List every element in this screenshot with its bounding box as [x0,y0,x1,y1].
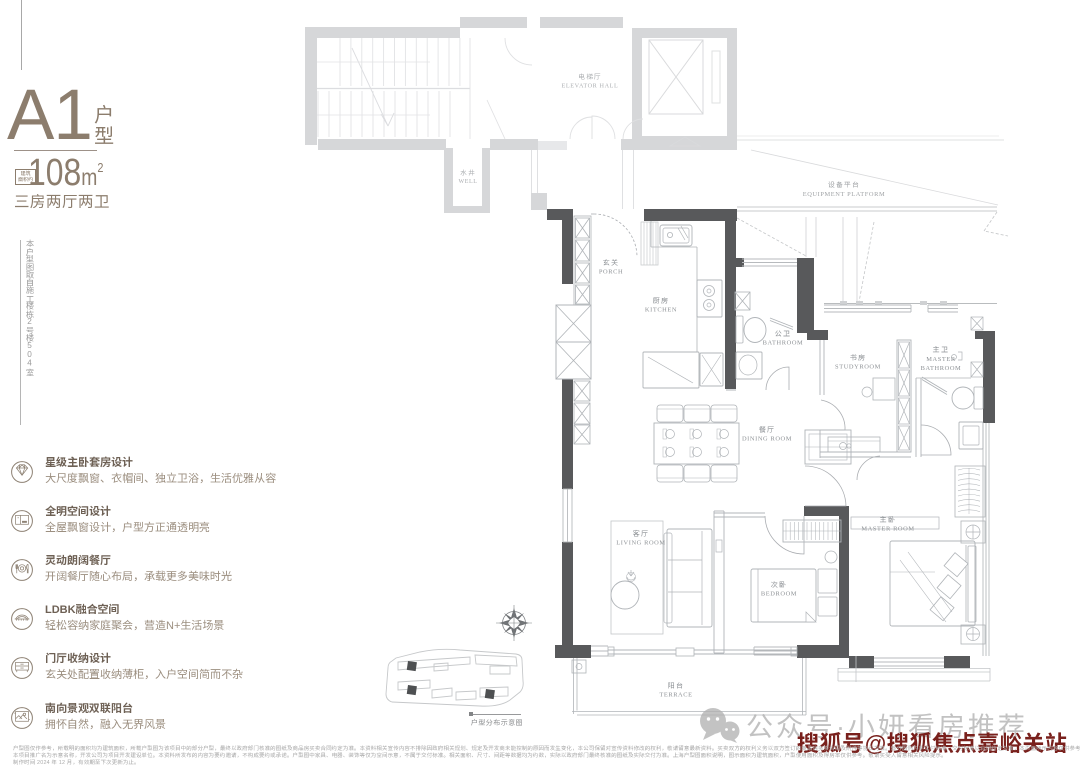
svg-text:餐厅: 餐厅 [759,425,775,435]
svg-text:玄关: 玄关 [603,258,619,268]
svg-text:TERRACE: TERRACE [659,692,692,699]
svg-text:电梯厅: 电梯厅 [578,71,601,81]
svg-text:STUDYROOM: STUDYROOM [835,364,881,371]
svg-text:设备平台: 设备平台 [828,179,860,189]
svg-text:KITCHEN: KITCHEN [645,307,677,314]
svg-text:MASTER: MASTER [926,356,956,363]
svg-text:BATHROOM: BATHROOM [921,365,962,372]
svg-text:阳台: 阳台 [668,681,684,691]
svg-text:ELEVATOR HALL: ELEVATOR HALL [562,83,619,90]
svg-text:公卫: 公卫 [775,329,791,339]
svg-text:次卧: 次卧 [771,580,787,590]
svg-text:EQUIPMENT PLATFORM: EQUIPMENT PLATFORM [803,191,886,198]
svg-text:LIVING ROOM: LIVING ROOM [616,540,665,547]
svg-text:厨房: 厨房 [653,296,669,306]
svg-text:主卧: 主卧 [880,515,896,525]
svg-text:BEDROOM: BEDROOM [761,591,797,598]
svg-text:书房: 书房 [850,353,866,363]
svg-text:主卫: 主卫 [933,345,949,355]
svg-text:水井: 水井 [460,167,475,177]
svg-text:BATHROOM: BATHROOM [763,340,804,347]
svg-text:MASTER ROOM: MASTER ROOM [861,526,914,533]
svg-text:PORCH: PORCH [599,269,623,276]
svg-text:客厅: 客厅 [633,529,649,539]
svg-text:DINING ROOM: DINING ROOM [742,436,792,443]
svg-text:户型分布示意图: 户型分布示意图 [471,718,524,728]
svg-text:WELL: WELL [458,179,477,185]
